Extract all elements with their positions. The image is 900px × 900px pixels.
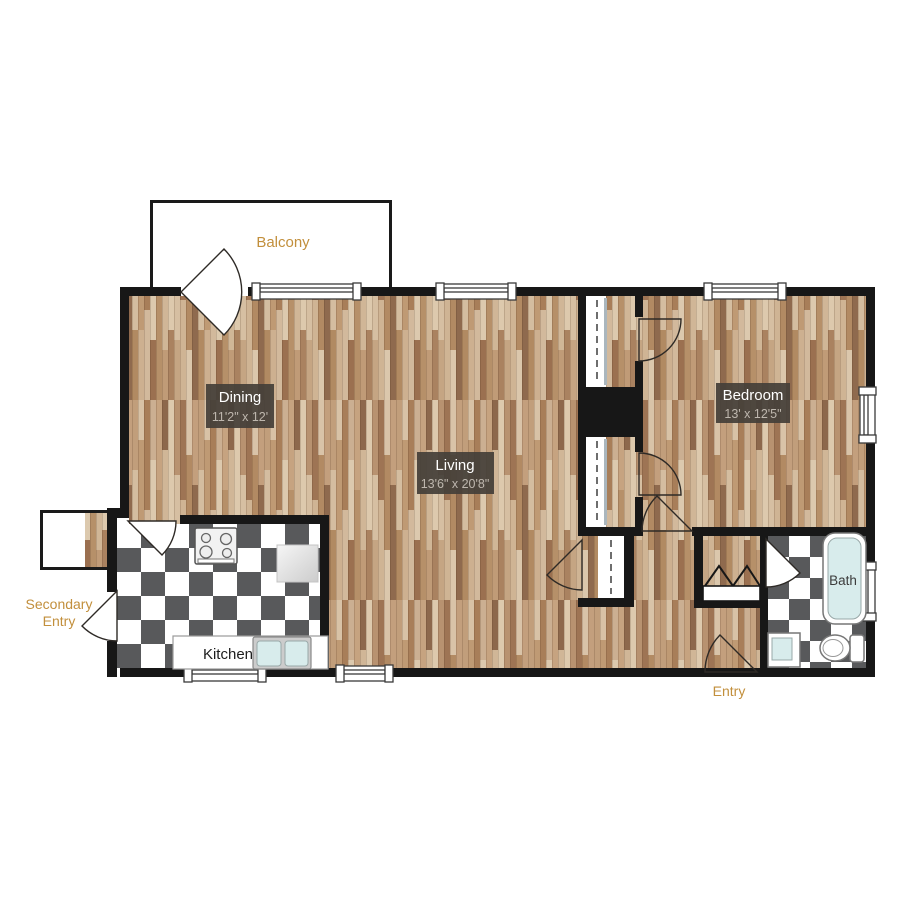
closet-upper	[586, 296, 606, 387]
kitchen-label: Kitchen	[203, 646, 253, 663]
vestibule-wood-strip	[85, 513, 107, 567]
vestibule-wall-left	[40, 510, 43, 570]
wall-kitchen-left-b	[107, 641, 117, 677]
vestibule-wall-top	[40, 510, 107, 513]
window	[336, 665, 393, 682]
wall-kitchen-left-a	[107, 508, 117, 592]
wall-column-left-lower	[578, 437, 586, 536]
window	[436, 283, 516, 300]
burner-icon	[202, 534, 211, 543]
balcony-wall-right	[389, 200, 392, 292]
burner-icon	[223, 549, 232, 558]
window	[859, 387, 876, 443]
sink-basin-icon	[285, 641, 308, 666]
wall-entry-closet-bottom	[694, 601, 768, 608]
living-label: Living	[435, 457, 474, 474]
wall-chase-bottom	[578, 598, 634, 607]
vestibule-wall-bottom	[40, 567, 107, 570]
bedroom-label: Bedroom	[723, 387, 784, 404]
toilet-tank	[850, 635, 864, 662]
balcony-label: Balcony	[256, 234, 310, 251]
balcony-wall-top	[150, 200, 392, 203]
burner-icon	[221, 534, 232, 545]
wall-bedroom-bottom-a	[578, 527, 642, 536]
living-dims: 13'6" x 20'8"	[421, 477, 490, 491]
vanity-sink	[772, 638, 792, 660]
dining-dims: 11'2" x 12'	[212, 410, 268, 424]
secondary-entry-label-line1: Secondary	[26, 596, 93, 612]
entry-label: Entry	[713, 683, 746, 699]
toilet-bowl	[823, 640, 843, 657]
closet-shelf	[703, 586, 760, 601]
wall-bedroom-left-c	[635, 437, 643, 452]
balcony-wall-left	[150, 200, 153, 292]
wall-entry-closet-left	[694, 536, 703, 608]
closet-lower-track	[604, 439, 607, 525]
counter-island	[277, 545, 318, 582]
wall-chase-right	[624, 536, 634, 607]
floor-plan-canvas: Balcony Dining 11'2" x 12' Living 13'6" …	[0, 0, 900, 900]
window	[252, 283, 361, 300]
burner-icon	[200, 546, 212, 558]
wall-column-left-upper	[578, 296, 586, 387]
closet-upper-track	[604, 298, 607, 385]
wall-kitchen-top	[180, 515, 328, 524]
closet-lower	[586, 437, 606, 527]
wall-top-a	[120, 287, 181, 296]
bath-label: Bath	[829, 573, 857, 588]
wall-left-upper	[120, 287, 129, 518]
dining-label: Dining	[219, 389, 262, 406]
sink-basin-icon	[257, 641, 281, 666]
wall-bedroom-left-a	[635, 296, 643, 317]
floor-plan: Balcony Dining 11'2" x 12' Living 13'6" …	[0, 0, 900, 900]
stove-front-edge	[198, 559, 234, 563]
bedroom-dims: 13' x 12'5"	[724, 407, 781, 421]
window	[704, 283, 786, 300]
vestibule	[40, 510, 107, 570]
wall-column-block	[578, 387, 643, 437]
wall-bedroom-left-b	[635, 361, 643, 387]
secondary-entry-label-line2: Entry	[43, 613, 76, 629]
